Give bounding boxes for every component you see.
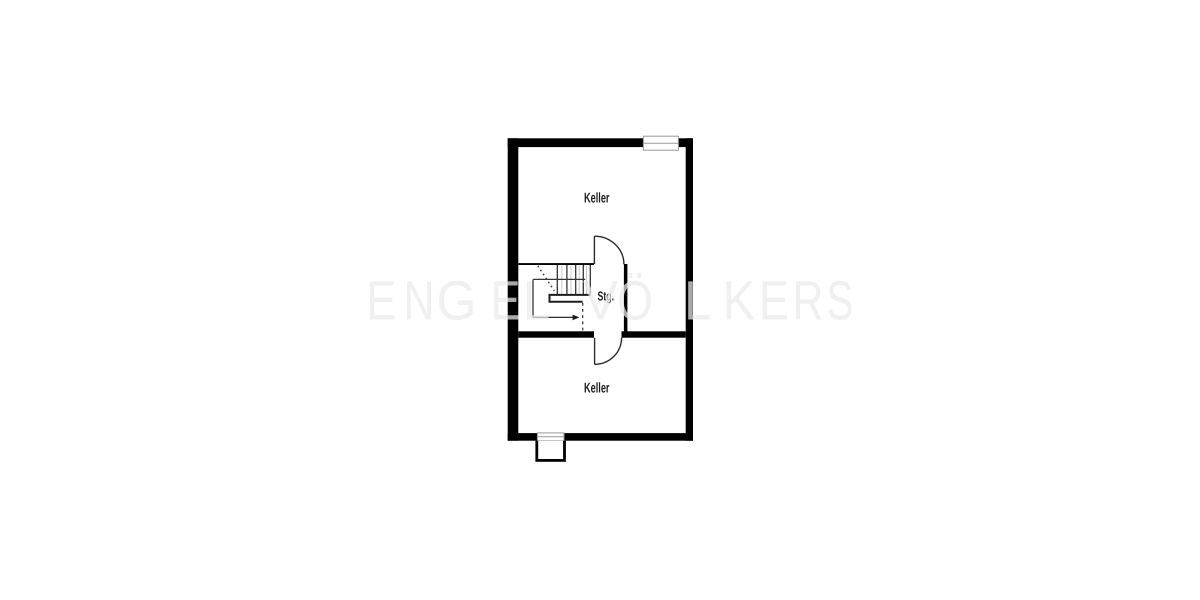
svg-text:L: L xyxy=(523,269,550,331)
svg-text:E: E xyxy=(367,269,397,331)
svg-text:Keller: Keller xyxy=(584,379,610,395)
svg-text:Keller: Keller xyxy=(584,190,610,206)
svg-text:S: S xyxy=(827,269,854,331)
svg-text:Ö: Ö xyxy=(617,269,653,331)
svg-text:L: L xyxy=(684,269,711,331)
svg-text:R: R xyxy=(793,269,824,331)
svg-text:E: E xyxy=(491,269,521,331)
svg-text:N: N xyxy=(404,269,435,331)
svg-text:G: G xyxy=(437,269,477,331)
svg-text:V: V xyxy=(583,269,618,331)
svg-text:E: E xyxy=(759,269,789,331)
svg-text:K: K xyxy=(723,269,756,331)
